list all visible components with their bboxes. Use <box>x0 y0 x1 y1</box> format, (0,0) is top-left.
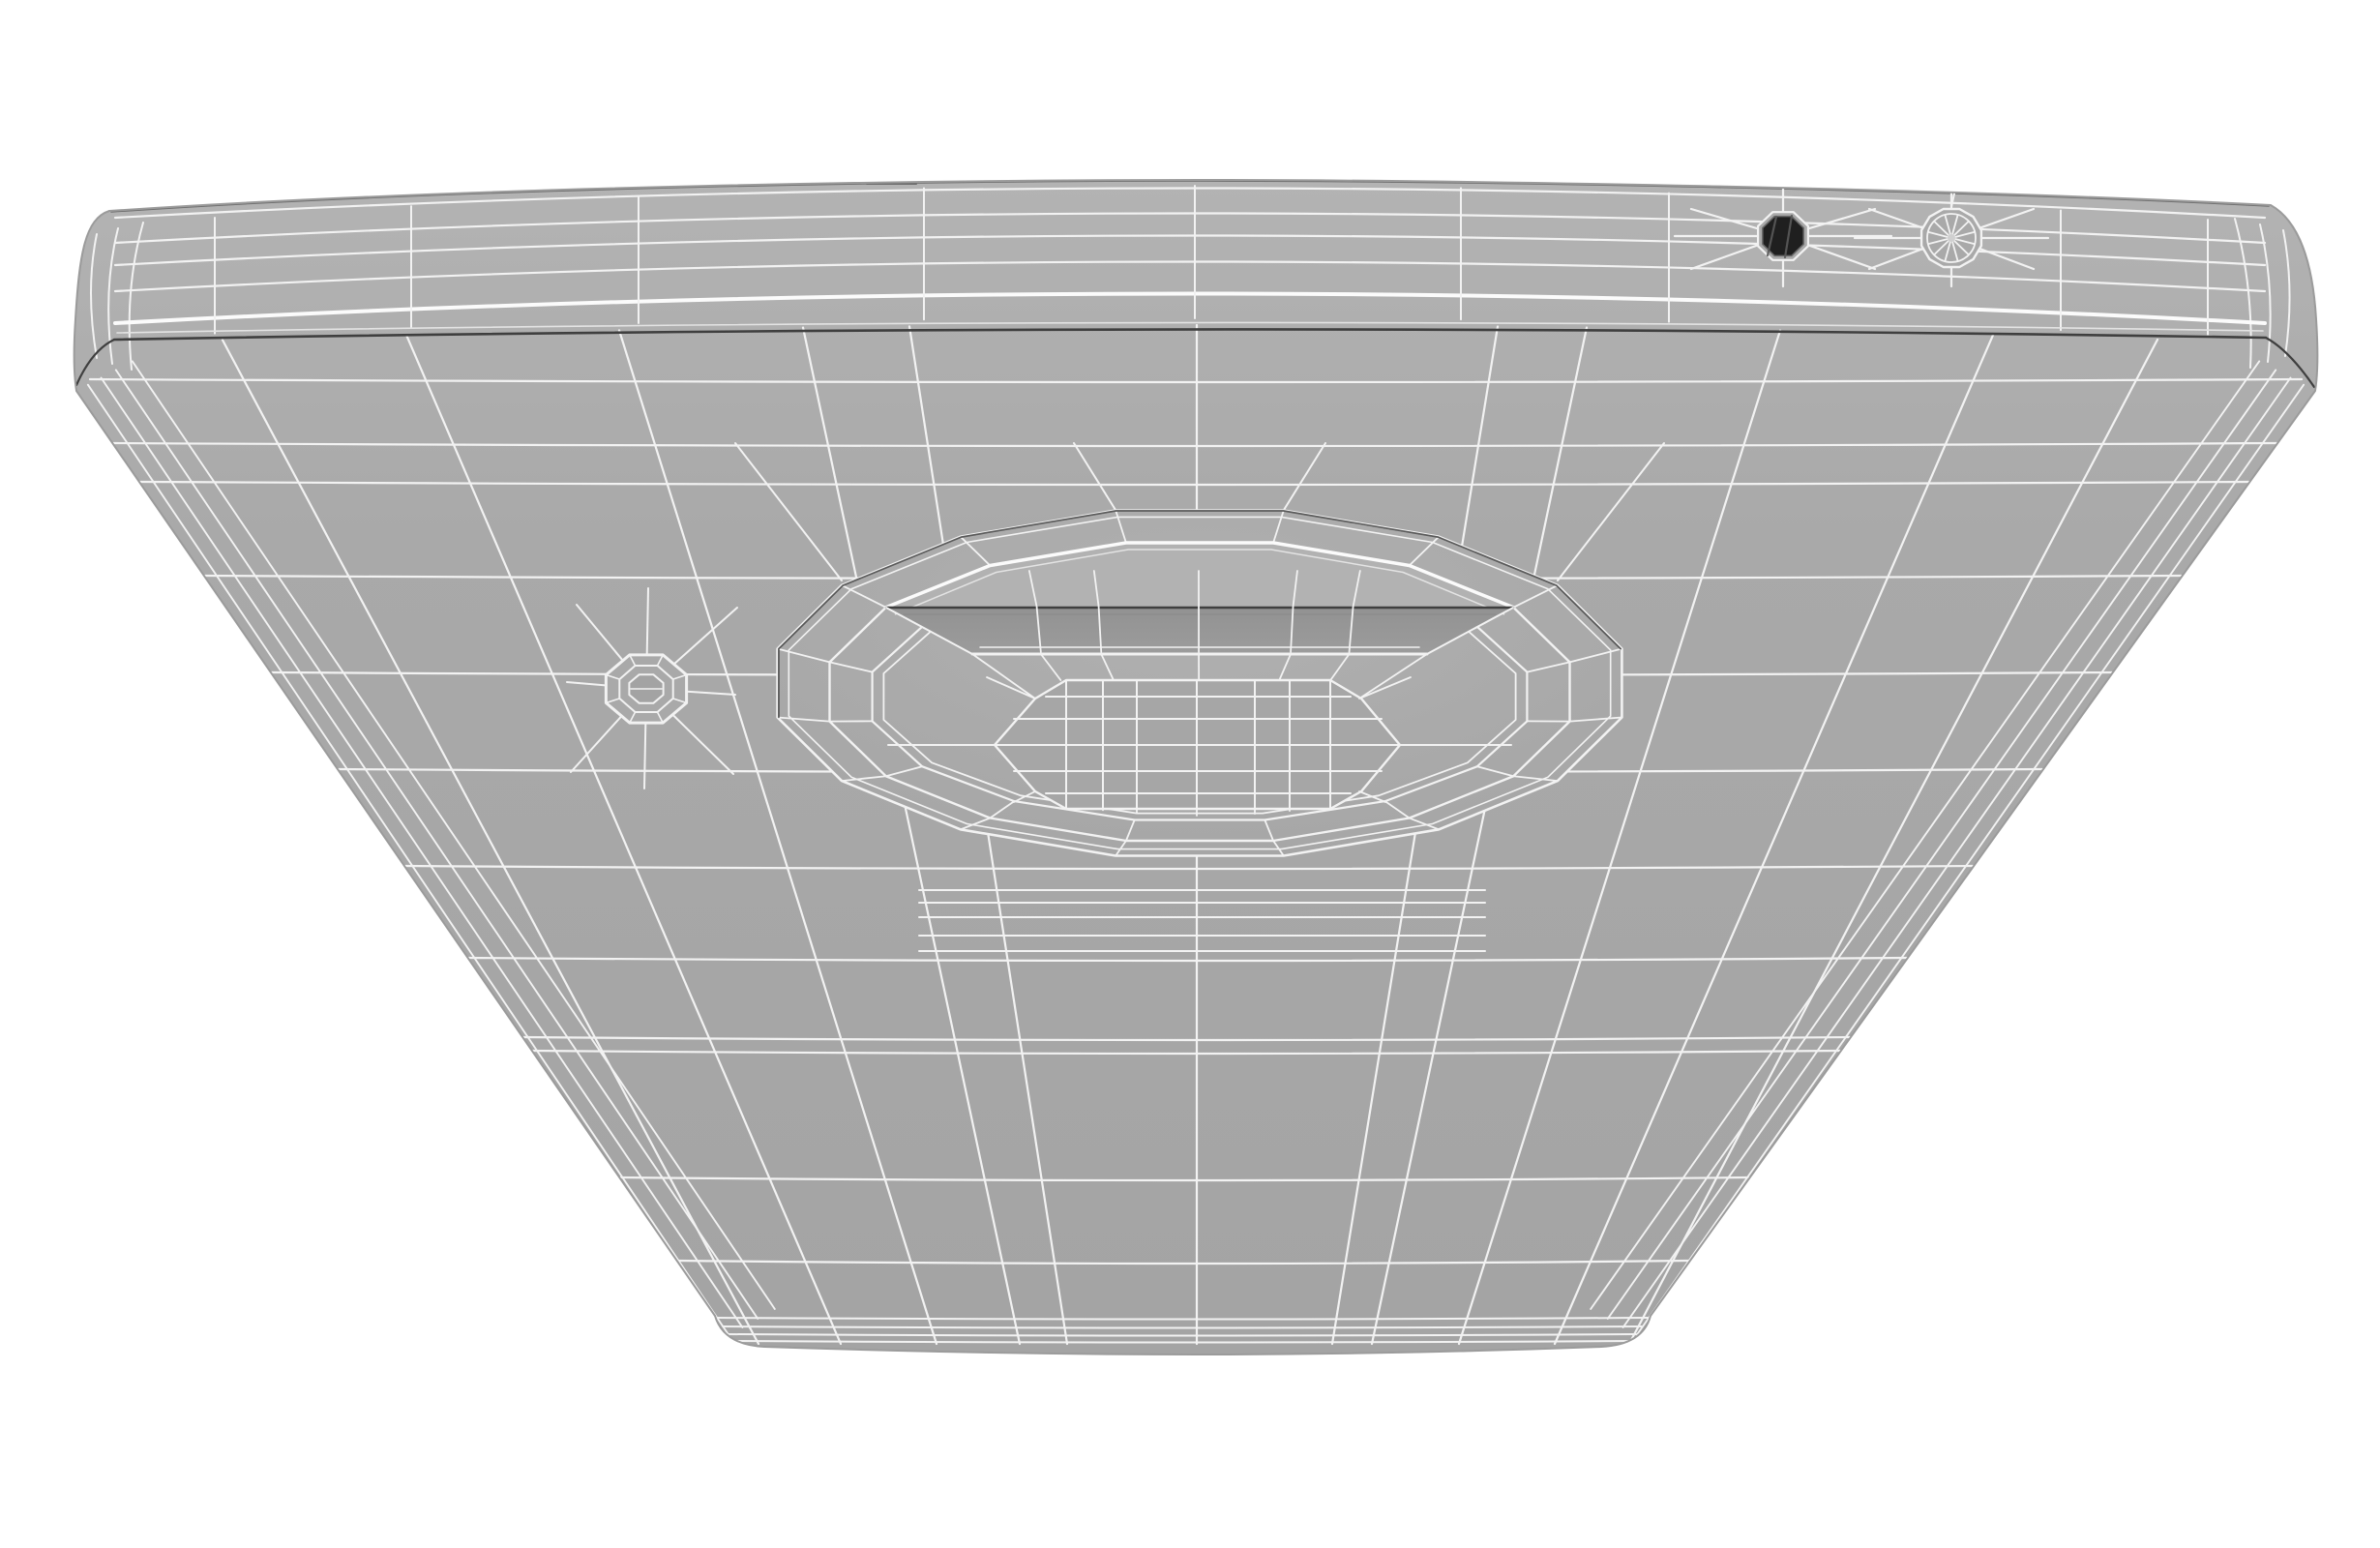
wireframe-device-render <box>0 0 2380 1548</box>
center-camera-dome <box>778 510 1622 855</box>
render-viewport <box>0 0 2380 1548</box>
